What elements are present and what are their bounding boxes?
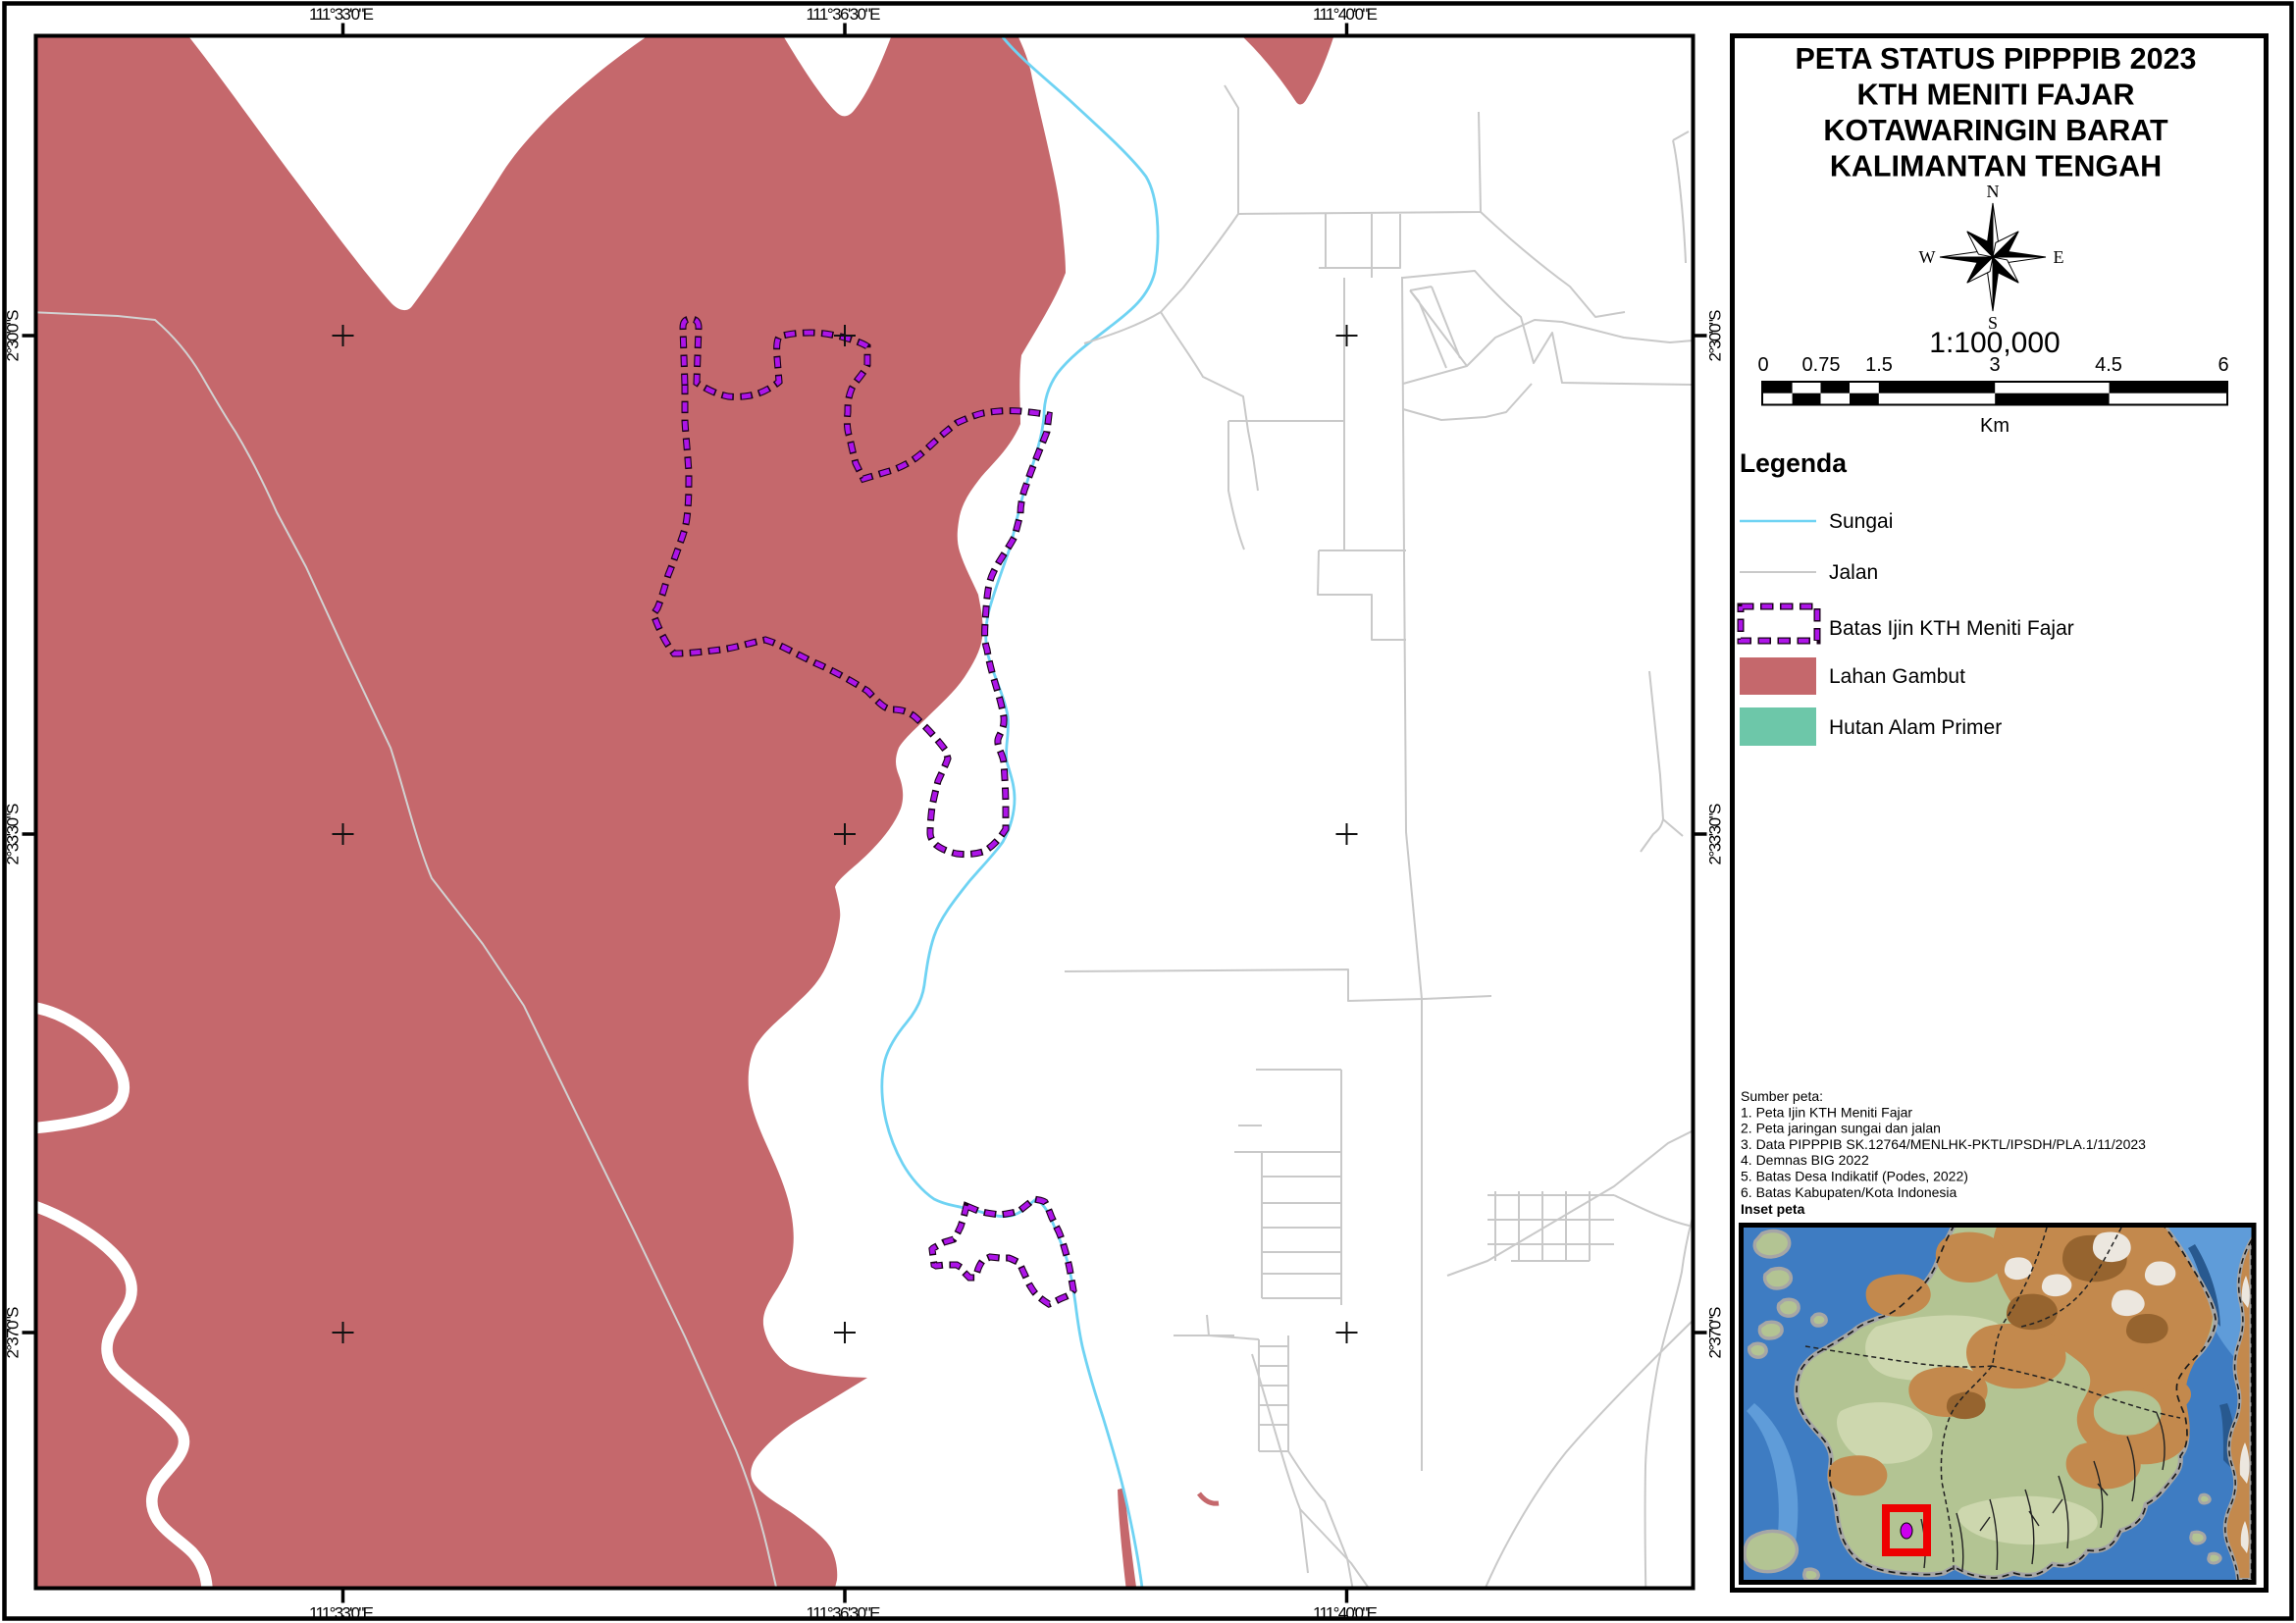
svg-text:5. Batas Desa Indikatif (Podes: 5. Batas Desa Indikatif (Podes, 2022) — [1741, 1169, 1968, 1184]
svg-text:KTH MENITI FAJAR: KTH MENITI FAJAR — [1857, 79, 2135, 112]
svg-text:6. Batas Kabupaten/Kota Indone: 6. Batas Kabupaten/Kota Indonesia — [1741, 1184, 1957, 1200]
svg-text:4. Demnas BIG 2022: 4. Demnas BIG 2022 — [1741, 1152, 1869, 1168]
svg-text:4.5: 4.5 — [2095, 354, 2122, 376]
svg-text:2°33'30"S: 2°33'30"S — [4, 804, 23, 865]
svg-text:W: W — [1919, 247, 1936, 267]
svg-text:111°33'0"E: 111°33'0"E — [309, 1604, 374, 1623]
svg-text:111°36'30"E: 111°36'30"E — [807, 5, 881, 24]
svg-text:KOTAWARINGIN BARAT: KOTAWARINGIN BARAT — [1823, 114, 2168, 147]
svg-text:E: E — [2054, 247, 2064, 267]
svg-text:Km: Km — [1980, 415, 2009, 437]
svg-text:2. Peta jaringan sungai dan ja: 2. Peta jaringan sungai dan jalan — [1741, 1121, 1941, 1136]
svg-text:Sungai: Sungai — [1829, 510, 1893, 533]
svg-text:2°33'30"S: 2°33'30"S — [1706, 804, 1725, 865]
svg-text:6: 6 — [2218, 354, 2228, 376]
svg-text:Lahan Gambut: Lahan Gambut — [1829, 665, 1965, 688]
svg-text:Inset peta: Inset peta — [1741, 1201, 1805, 1217]
svg-text:111°36'30"E: 111°36'30"E — [807, 1604, 881, 1623]
svg-text:PETA STATUS PIPPPIB 2023: PETA STATUS PIPPPIB 2023 — [1795, 42, 2196, 76]
svg-text:2°30'0"S: 2°30'0"S — [1706, 310, 1725, 362]
svg-text:0: 0 — [1757, 354, 1768, 376]
svg-text:111°40'0"E: 111°40'0"E — [1313, 1604, 1378, 1623]
svg-text:111°40'0"E: 111°40'0"E — [1313, 5, 1378, 24]
svg-text:2°37'0"S: 2°37'0"S — [4, 1307, 23, 1359]
svg-text:1.5: 1.5 — [1865, 354, 1893, 376]
svg-text:2°30'0"S: 2°30'0"S — [4, 310, 23, 362]
svg-text:111°33'0"E: 111°33'0"E — [309, 5, 374, 24]
svg-text:2°37'0"S: 2°37'0"S — [1706, 1307, 1725, 1359]
svg-text:Jalan: Jalan — [1829, 561, 1878, 584]
svg-text:3: 3 — [1989, 354, 2000, 376]
svg-text:3. Data PIPPPIB SK.12764/MENLH: 3. Data PIPPPIB SK.12764/MENLHK-PKTL/IPS… — [1741, 1136, 2146, 1152]
svg-text:N: N — [1987, 182, 2000, 201]
svg-text:Sumber peta:: Sumber peta: — [1741, 1088, 1823, 1104]
svg-text:Batas Ijin KTH Meniti Fajar: Batas Ijin KTH Meniti Fajar — [1829, 617, 2074, 640]
svg-text:Hutan Alam Primer: Hutan Alam Primer — [1829, 716, 2002, 739]
svg-text:Legenda: Legenda — [1740, 448, 1847, 478]
svg-text:1. Peta Ijin KTH Meniti Fajar: 1. Peta Ijin KTH Meniti Fajar — [1741, 1104, 1912, 1120]
svg-text:KALIMANTAN TENGAH: KALIMANTAN TENGAH — [1830, 150, 2162, 183]
svg-text:0.75: 0.75 — [1802, 354, 1841, 376]
